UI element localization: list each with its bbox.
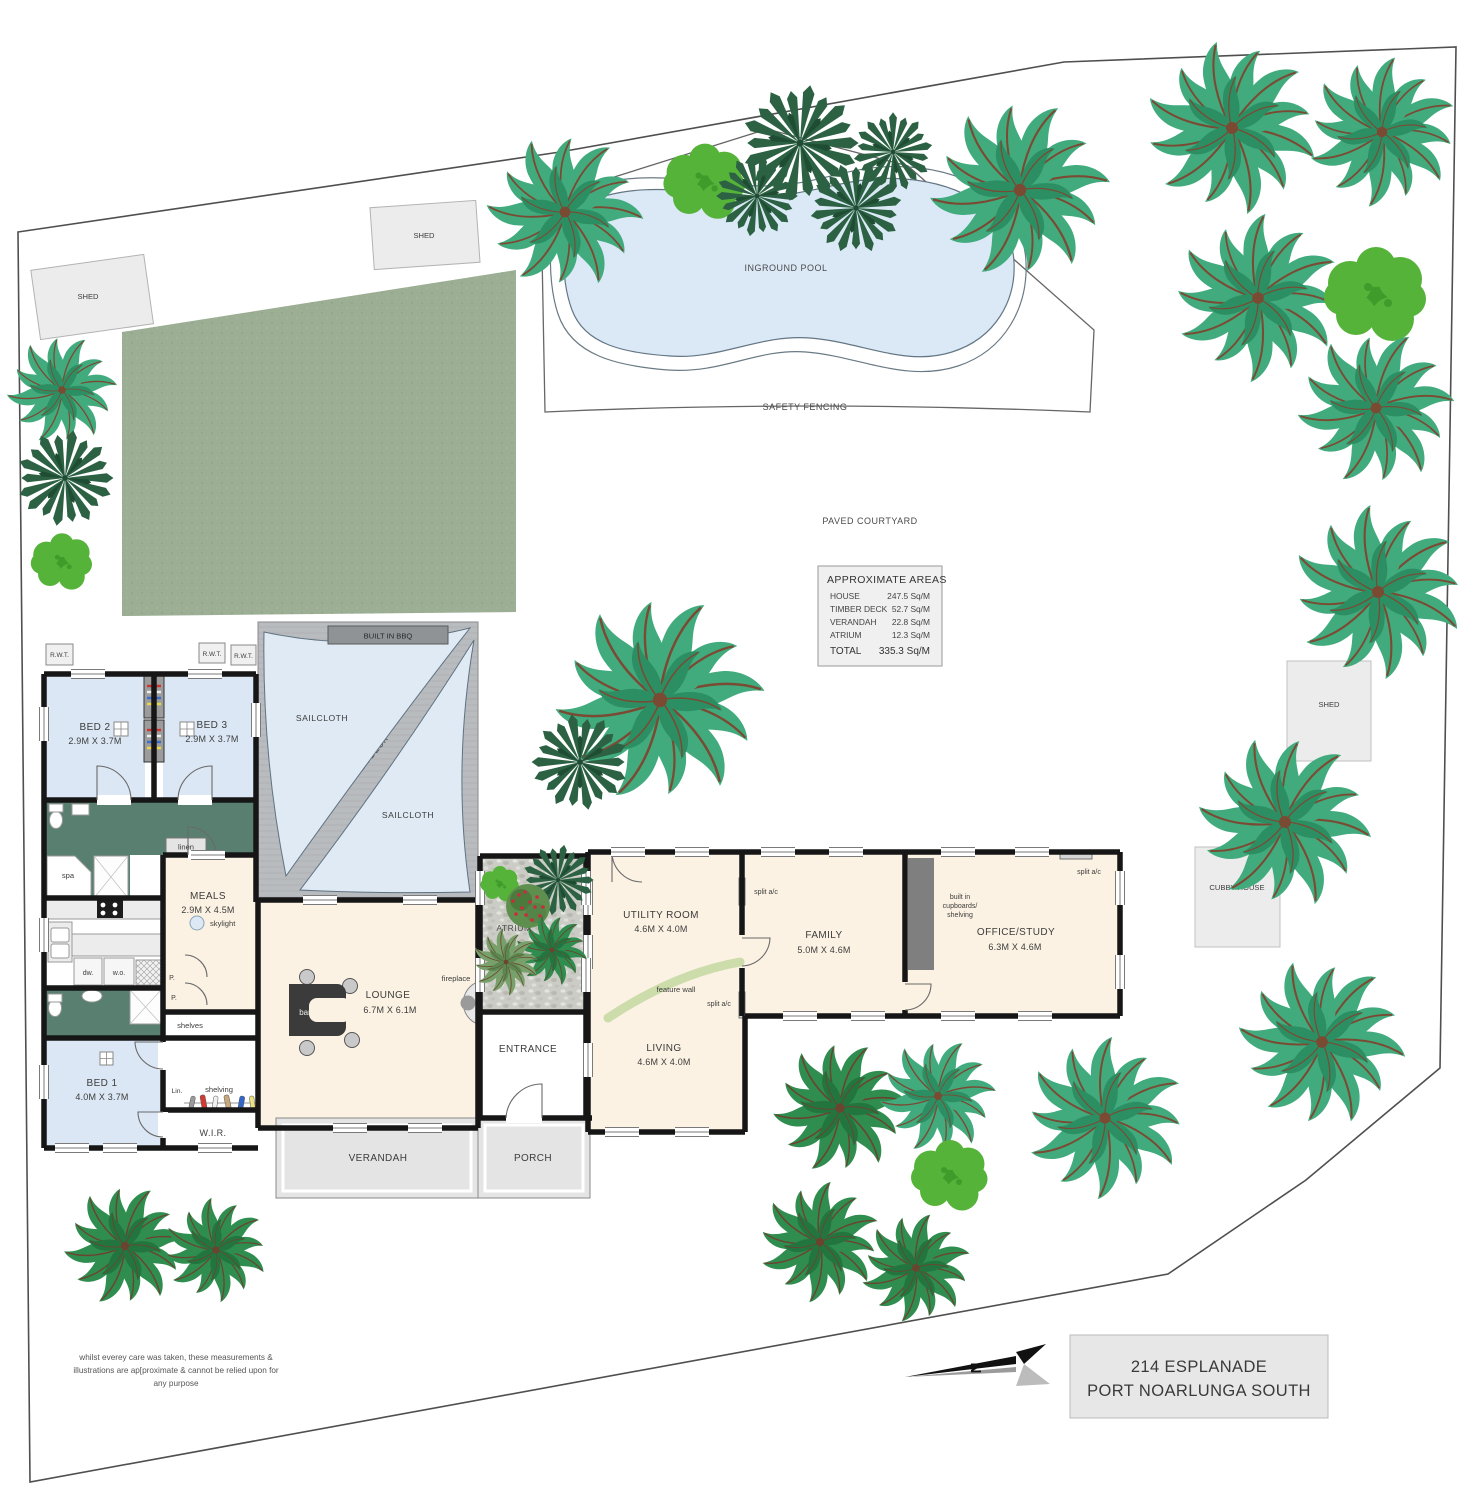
areas-row-label-1: TIMBER DECK bbox=[830, 604, 888, 614]
cupboards-label-1: built in bbox=[950, 894, 970, 901]
living-label: LIVING bbox=[646, 1043, 681, 1054]
split-ac-label-3: split a/c bbox=[1077, 869, 1101, 876]
areas-table: APPROXIMATE AREAS HOUSE 247.5 Sq/M TIMBE… bbox=[818, 566, 947, 666]
areas-row-value-0: 247.5 Sq/M bbox=[887, 591, 930, 601]
paved-courtyard-label: PAVED COURTYARD bbox=[822, 516, 917, 526]
split-ac-label-2: split a/c bbox=[707, 1001, 731, 1008]
stove-icon bbox=[97, 900, 123, 918]
areas-row-label-0: HOUSE bbox=[830, 591, 860, 601]
bed3-dims: 2.9M X 3.7M bbox=[185, 734, 238, 744]
family-dims: 5.0M X 4.6M bbox=[797, 945, 850, 955]
cupboards-label-3: shelving bbox=[947, 912, 973, 919]
areas-total-label: TOTAL bbox=[830, 646, 862, 657]
north-letter: N bbox=[968, 1363, 985, 1374]
areas-row-value-1: 52.7 Sq/M bbox=[892, 604, 930, 614]
areas-total-value: 335.3 Sq/M bbox=[879, 646, 930, 657]
disclaimer-line-2: illustrations are ap[proximate & cannot … bbox=[73, 1366, 279, 1375]
disclaimer-line-1: whilst everey care was taken, these meas… bbox=[78, 1353, 273, 1362]
verandah-label: VERANDAH bbox=[349, 1153, 408, 1164]
split-ac-label-1: split a/c bbox=[754, 889, 778, 896]
lounge-label: LOUNGE bbox=[366, 990, 411, 1001]
basin2-icon bbox=[82, 990, 102, 1002]
built-in-cupboards bbox=[908, 858, 934, 970]
bed2-label: BED 2 bbox=[80, 722, 111, 733]
address-line-2: PORT NOARLUNGA SOUTH bbox=[1087, 1382, 1311, 1400]
wir-label: W.I.R. bbox=[200, 1128, 227, 1138]
shed-right-label: SHED bbox=[1318, 700, 1340, 709]
entrance-label: ENTRANCE bbox=[499, 1044, 557, 1055]
meals-label: MEALS bbox=[190, 891, 226, 902]
room-entrance bbox=[480, 1012, 586, 1118]
pantry-label-1: P. bbox=[169, 975, 175, 982]
safety-fencing-label: SAFETY FENCING bbox=[763, 402, 848, 412]
areas-row-label-3: ATRIUM bbox=[830, 630, 862, 640]
porch-label: PORCH bbox=[514, 1153, 552, 1164]
meals-dims: 2.9M X 4.5M bbox=[181, 905, 234, 915]
utility-label: UTILITY ROOM bbox=[623, 910, 699, 921]
utility-dims: 4.6M X 4.0M bbox=[634, 924, 687, 934]
shed-right bbox=[1287, 661, 1371, 761]
shed-top-mid-label: SHED bbox=[413, 231, 435, 240]
cupboards-label-2: cupboards/ bbox=[943, 903, 978, 910]
spa-label: spa bbox=[62, 871, 75, 880]
north-arrow: N bbox=[905, 1344, 1050, 1386]
rwt-label-2: R.W.T. bbox=[203, 651, 222, 658]
skylight-icon bbox=[190, 916, 204, 930]
lounge-dims: 6.7M X 6.1M bbox=[363, 1005, 416, 1015]
shelves-label: shelves bbox=[177, 1021, 203, 1030]
areas-title: APPROXIMATE AREAS bbox=[827, 574, 947, 586]
fireplace-label: fireplace bbox=[442, 974, 471, 983]
bar-label: bar bbox=[299, 1008, 311, 1017]
lin-label: Lin. bbox=[172, 1088, 183, 1095]
bed1-label: BED 1 bbox=[87, 1078, 118, 1089]
inground-pool-label: INGROUND POOL bbox=[744, 263, 827, 273]
living-dims: 4.6M X 4.0M bbox=[637, 1057, 690, 1067]
rwt-label-1: R.W.T. bbox=[50, 652, 69, 659]
wo-label: w.o. bbox=[112, 970, 126, 977]
dw-label: dw. bbox=[83, 970, 94, 977]
address-box: 214 ESPLANADE PORT NOARLUNGA SOUTH bbox=[1070, 1335, 1328, 1418]
rwt-label-3: R.W.T. bbox=[234, 653, 253, 660]
site-plan-svg: SHED SHED INGROUND POOL SAFETY FENCING P… bbox=[0, 0, 1472, 1493]
sailcloth-label-1: SAILCLOTH bbox=[296, 713, 348, 723]
areas-row-value-2: 22.8 Sq/M bbox=[892, 617, 930, 627]
built-in-bbq-label: BUILT IN BBQ bbox=[364, 632, 413, 641]
office-dims: 6.3M X 4.6M bbox=[988, 942, 1041, 952]
floorplan-page: SHED SHED INGROUND POOL SAFETY FENCING P… bbox=[0, 0, 1472, 1493]
skylight-label: skylight bbox=[210, 919, 236, 928]
shed-top-left-label: SHED bbox=[77, 292, 99, 301]
office-label: OFFICE/STUDY bbox=[977, 927, 1055, 938]
toilet1-icon bbox=[50, 812, 63, 829]
feature-wall-label: feature wall bbox=[657, 985, 696, 994]
room-meals bbox=[163, 855, 258, 1012]
bed2-dims: 2.9M X 3.7M bbox=[68, 736, 121, 746]
address-line-1: 214 ESPLANADE bbox=[1131, 1358, 1267, 1376]
bed1-dims: 4.0M X 3.7M bbox=[75, 1092, 128, 1102]
family-label: FAMILY bbox=[805, 930, 842, 941]
basin1-icon bbox=[72, 804, 89, 815]
disclaimer-line-3: any purpose bbox=[153, 1379, 199, 1388]
areas-row-value-3: 12.3 Sq/M bbox=[892, 630, 930, 640]
shelving-label: shelving bbox=[205, 1085, 233, 1094]
pantry-label-2: P. bbox=[171, 995, 177, 1002]
room-living bbox=[588, 1016, 745, 1132]
sailcloth-label-2: SAILCLOTH bbox=[382, 810, 434, 820]
areas-row-label-2: VERANDAH bbox=[830, 617, 877, 627]
bed3-label: BED 3 bbox=[197, 720, 228, 731]
linen-label: linen bbox=[178, 843, 194, 852]
